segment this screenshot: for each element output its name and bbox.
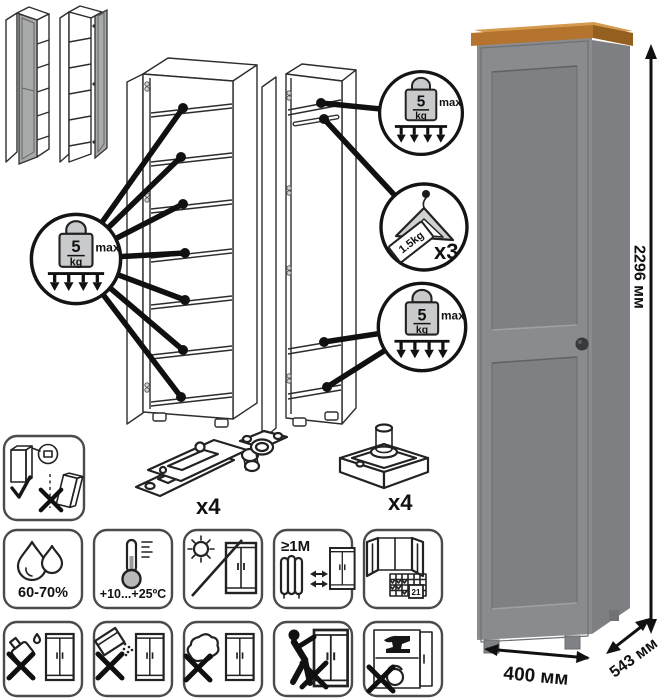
wardrobe-pictogram <box>46 634 74 680</box>
temperature-icon: +10...+25ºC <box>94 530 172 608</box>
humidity-icon: 60-70% <box>4 530 82 608</box>
height-dimension: 2296 мм <box>631 44 658 634</box>
no-dragging-icon <box>274 622 352 696</box>
bottom-shelf-load-callout <box>378 283 465 370</box>
product-render <box>471 22 633 653</box>
hanger-load-callout: 1.5kg x3 <box>381 184 467 270</box>
thumbnail-cabinet-open <box>60 6 107 162</box>
door-upper-panel <box>492 66 577 330</box>
wardrobe-pictogram <box>136 634 164 680</box>
no-overload-icon <box>364 622 442 696</box>
exploded-cabinet-shelves <box>127 58 257 427</box>
temperature-label: +10...+25ºC <box>100 587 166 601</box>
wardrobe-pictogram <box>226 634 254 680</box>
heat-distance-icon: ≥1М <box>274 530 355 608</box>
exploded-cabinet-interior <box>262 64 356 440</box>
window-icon <box>367 538 423 576</box>
width-label: 400 мм <box>503 663 570 690</box>
anti-tip-warning-icon <box>4 436 84 520</box>
furniture-infographic: 5 kg max <box>0 0 672 700</box>
distance-label: ≥1М <box>281 538 310 555</box>
shelf-load-callout-circle <box>31 214 120 303</box>
door-knob <box>576 338 589 351</box>
drop-icon <box>34 634 40 643</box>
depth-label: 543 мм <box>607 635 661 681</box>
hanger-count-label: x3 <box>434 239 458 264</box>
no-solvents-icon <box>4 622 82 696</box>
humidity-label: 60-70% <box>18 585 68 601</box>
top-shelf-load-callout <box>380 72 463 155</box>
no-abrasives-icon <box>94 622 172 696</box>
ventilation-icon: 21 <box>364 530 442 608</box>
wardrobe-pictogram <box>330 548 355 589</box>
infographic-canvas: 5 kg max <box>0 0 672 700</box>
height-label: 2296 мм <box>631 245 648 309</box>
door-lower-panel <box>492 357 577 609</box>
foot-count-label: x4 <box>388 490 413 515</box>
hinge-illustration: x4 <box>136 431 287 519</box>
calendar-icon: 21 <box>390 574 426 598</box>
radiator-icon <box>281 556 302 598</box>
wardrobe-pictogram <box>226 543 256 593</box>
width-dimension: 400 мм <box>484 644 590 690</box>
thumbnail-cabinet-closed <box>6 7 49 164</box>
hinge-count-label: x4 <box>196 494 221 519</box>
calendar-day-label: 21 <box>412 588 421 597</box>
foot-illustration: x4 <box>340 425 428 516</box>
no-sunlight-icon <box>184 530 262 608</box>
no-wet-sponge-icon <box>184 622 262 696</box>
